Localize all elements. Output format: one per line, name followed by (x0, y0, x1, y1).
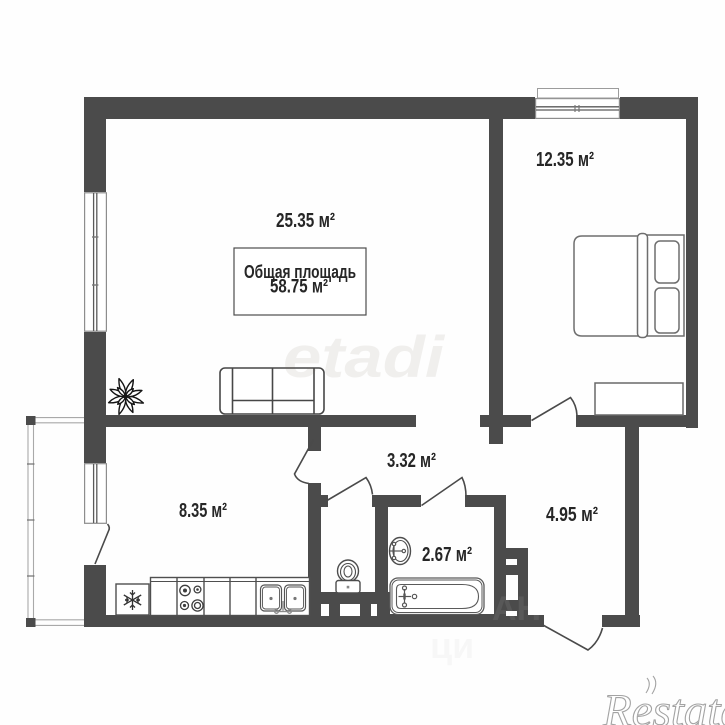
svg-text:АН: АН (492, 590, 541, 628)
svg-text:Restate: Restate (602, 685, 725, 725)
svg-text:25.35 м²: 25.35 м² (276, 210, 335, 232)
svg-text:12.35 м²: 12.35 м² (536, 149, 594, 171)
svg-text:8.35 м²: 8.35 м² (179, 500, 227, 522)
svg-text:etadi: etadi (283, 325, 446, 390)
svg-text:3.32 м²: 3.32 м² (387, 450, 436, 472)
svg-text:58.75 м²: 58.75 м² (270, 276, 328, 298)
svg-text:ци: ци (430, 625, 474, 666)
svg-text:2.67 м²: 2.67 м² (422, 544, 472, 566)
svg-text:4.95 м²: 4.95 м² (546, 504, 598, 526)
